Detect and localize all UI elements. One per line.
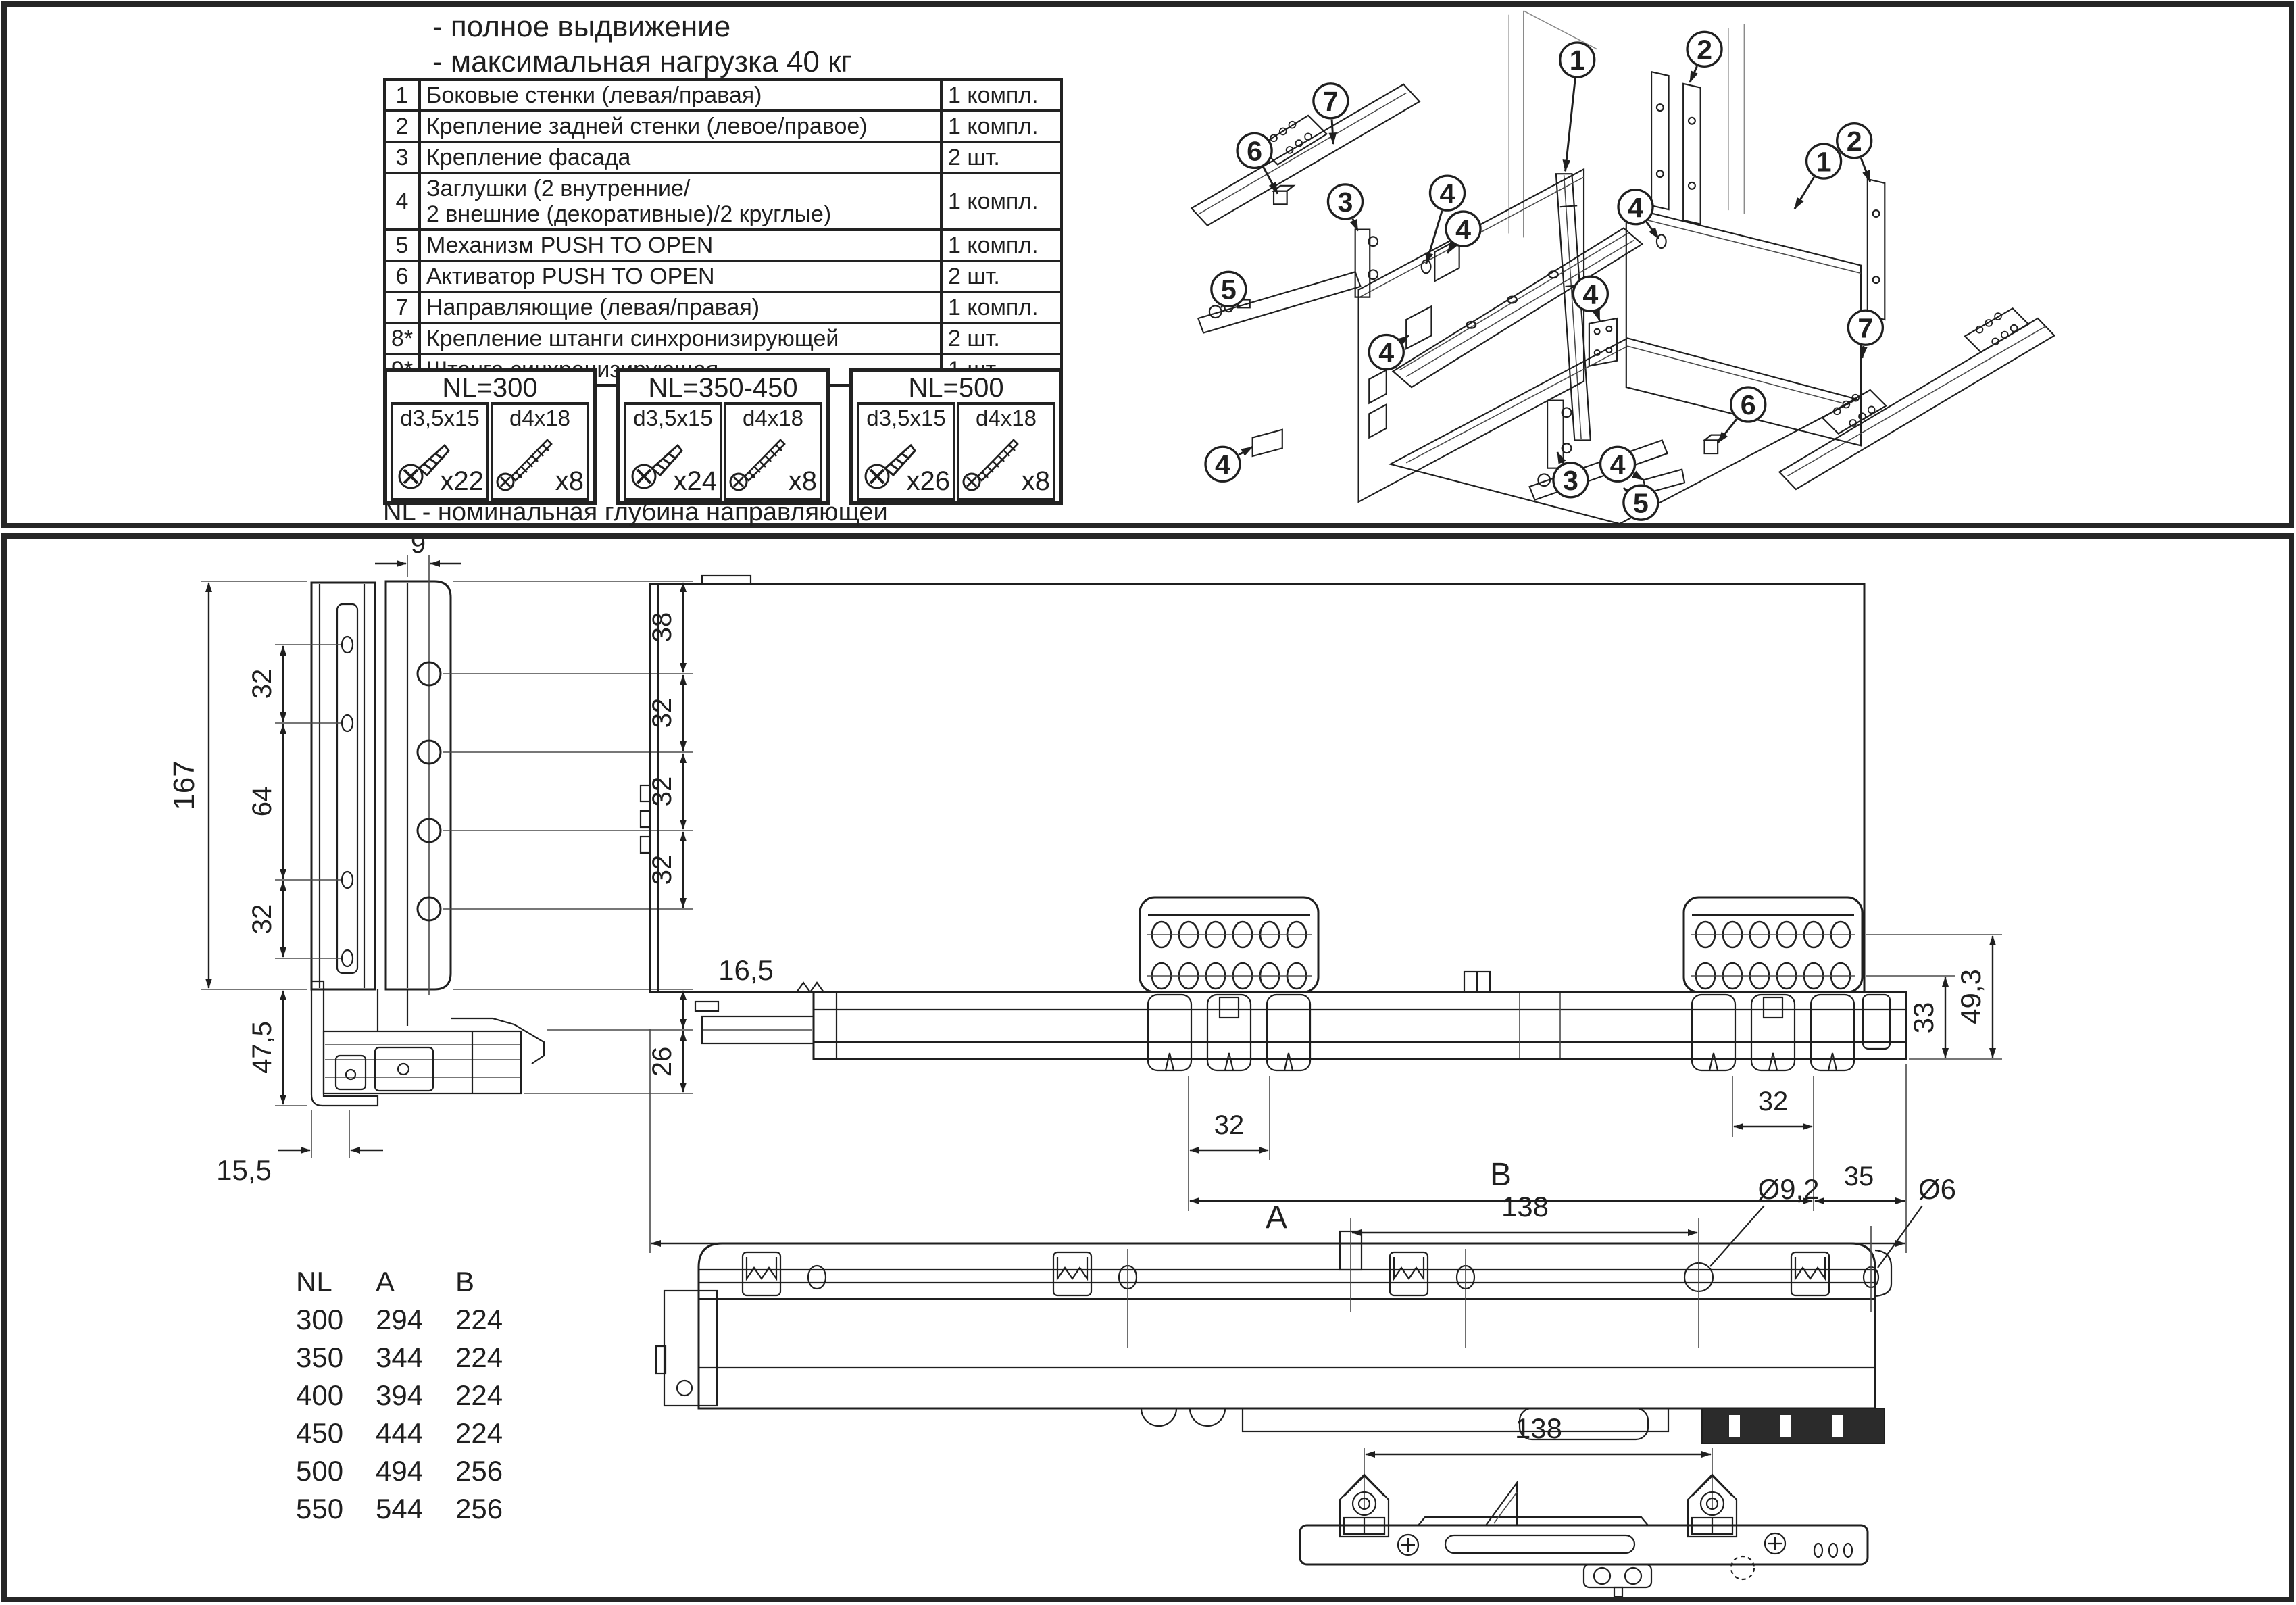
parts-list-table: 1Боковые стенки (левая/правая)1 компл.2К… <box>383 78 1063 387</box>
nl-note: NL - номинальная глубина направляющей <box>383 498 888 527</box>
parts-table-row: 3Крепление фасада2 шт. <box>384 142 1062 173</box>
size-table-cell: 224 <box>455 1414 535 1452</box>
dim-15-5: 15,5 <box>216 1154 272 1186</box>
screw-cell: d4x18x8 <box>957 402 1055 501</box>
callout-leader <box>1624 488 1627 491</box>
profile-dimensions: 9 167 32 64 32 <box>168 539 774 1186</box>
spring-windows <box>743 1252 1829 1295</box>
feature-bullets: - полное выдвижение - максимальная нагру… <box>432 9 851 80</box>
callout-leader <box>1222 306 1222 307</box>
callout-number: 4 <box>1582 278 1598 310</box>
callout-leader <box>1566 78 1576 171</box>
bullet-full-extension: - полное выдвижение <box>432 10 730 43</box>
parts-table-row: 5Механизм PUSH TO OPEN1 компл. <box>384 230 1062 261</box>
parts-cell-nm: Крепление фасада <box>420 142 941 173</box>
dim-32-left-bracket: 32 <box>1214 1110 1245 1140</box>
dim-A: A <box>1266 1200 1287 1235</box>
callout-number: 6 <box>1741 389 1756 420</box>
screw-kit-title: NL=350-450 <box>620 372 826 402</box>
parts-cell-nm: Активатор PUSH TO OPEN <box>420 261 941 292</box>
screw-kit-box: NL=350-450d3,5x15x24d4x18x8 <box>616 368 830 505</box>
callout-number: 4 <box>1628 192 1643 223</box>
size-table-cell: 300 <box>296 1301 376 1339</box>
screw-long-icon <box>961 430 1028 498</box>
screw-count: x8 <box>1022 466 1050 497</box>
callout-number: 3 <box>1338 187 1353 218</box>
parts-cell-num: 6 <box>384 261 420 292</box>
callout-number: 7 <box>1857 312 1873 343</box>
size-table-cell: 256 <box>455 1452 535 1490</box>
size-table-cell: 256 <box>455 1490 535 1528</box>
size-table-cell: 294 <box>376 1301 455 1339</box>
callout-leader <box>1861 158 1870 182</box>
parts-cell-qty: 1 компл. <box>941 80 1062 111</box>
callout-leader <box>1401 336 1409 341</box>
slide-rail-right-icon <box>1779 308 2054 489</box>
dim-9: 9 <box>411 539 426 559</box>
exploded-assembly-diagram: 7612344454412476345 <box>1149 8 2296 525</box>
screw-long-icon <box>495 430 562 498</box>
parts-cell-num: 8* <box>384 323 420 354</box>
callout-bubbles: 7612344454412476345 <box>1205 32 1882 520</box>
bottom-panel-icon <box>1391 338 1857 524</box>
size-table-cell: 350 <box>296 1339 376 1377</box>
parts-table-row: 2Крепление задней стенки (левое/правое)1… <box>384 111 1062 142</box>
size-table-header: B <box>455 1263 535 1301</box>
callout-number: 4 <box>1455 214 1471 245</box>
callout-number: 4 <box>1610 449 1626 480</box>
size-table-cell: 400 <box>296 1377 376 1414</box>
parts-cell-qty: 1 компл. <box>941 111 1062 142</box>
rail-top-view <box>656 1218 1891 1443</box>
main-side-view <box>641 576 1906 1070</box>
size-table: NLAB300294224350344224400394224450444224… <box>296 1263 535 1528</box>
screw-kit-box: NL=300d3,5x15x22d4x18x8 <box>383 368 597 505</box>
dim-49-3: 49,3 <box>1955 969 1987 1024</box>
parts-cell-qty: 2 шт. <box>941 261 1062 292</box>
callout-number: 4 <box>1440 178 1455 209</box>
size-table-header: A <box>376 1263 455 1301</box>
screw-size-label: d4x18 <box>959 405 1053 430</box>
parts-cell-qty: 1 компл. <box>941 230 1062 261</box>
parts-cell-nm: Крепление задней стенки (левое/правое) <box>420 111 941 142</box>
back-wall-strip-icons <box>1651 72 1885 320</box>
screw-kit-title: NL=300 <box>387 372 593 402</box>
parts-cell-qty: 2 шт. <box>941 323 1062 354</box>
slide-rail-left-icon <box>1191 84 1419 226</box>
callout-number: 2 <box>1847 126 1862 157</box>
screw-size-label: d3,5x15 <box>859 405 953 430</box>
callout-leader <box>1264 167 1278 194</box>
top-panel: - полное выдвижение - максимальная нагру… <box>1 1 2294 528</box>
callout-number: 1 <box>1570 45 1585 76</box>
dim-138-rail: 138 <box>1501 1191 1549 1223</box>
screw-long-icon <box>728 430 795 498</box>
screw-count: x8 <box>789 466 817 497</box>
callout-leader <box>1862 346 1864 358</box>
callout-number: 4 <box>1378 337 1394 368</box>
callout-number: 7 <box>1323 86 1339 117</box>
parts-cell-nm: Механизм PUSH TO OPEN <box>420 230 941 261</box>
parts-cell-nm: Направляющие (левая/правая) <box>420 292 941 323</box>
callout-number: 4 <box>1215 449 1230 480</box>
dim-32-inner-a: 32 <box>247 669 277 699</box>
parts-cell-nm: Заглушки (2 внутренние/ 2 внешние (декор… <box>420 173 941 230</box>
callout-leader <box>1647 222 1659 239</box>
dimension-panel: NLAB300294224350344224400394224450444224… <box>1 533 2294 1602</box>
dim-32-right-b: 32 <box>647 776 677 807</box>
parts-table-row: 4Заглушки (2 внутренние/ 2 внешние (деко… <box>384 173 1062 230</box>
size-table-cell: 550 <box>296 1490 376 1528</box>
parts-cell-num: 4 <box>384 173 420 230</box>
parts-cell-nm: Боковые стенки (левая/правая) <box>420 80 941 111</box>
callout-leader <box>1633 474 1643 480</box>
screw-kit-box: NL=500d3,5x15x26d4x18x8 <box>849 368 1063 505</box>
callout-leader <box>1447 245 1453 253</box>
dim-32-inner-b: 32 <box>247 904 277 935</box>
parts-table-row: 1Боковые стенки (левая/правая)1 компл. <box>384 80 1062 111</box>
dim-B: B <box>1490 1157 1512 1193</box>
callout-number: 3 <box>1563 465 1578 496</box>
callout-number: 1 <box>1816 146 1832 177</box>
screw-count: x8 <box>555 466 584 497</box>
dim-16-5: 16,5 <box>718 954 774 986</box>
screw-size-label: d4x18 <box>493 405 587 430</box>
size-table-cell: 494 <box>376 1452 455 1490</box>
dim-32-right-c: 32 <box>647 855 677 885</box>
parts-cell-qty: 1 компл. <box>941 173 1062 230</box>
screw-count: x24 <box>674 466 718 497</box>
screw-cell: d3,5x15x24 <box>624 402 722 501</box>
screw-cell: d3,5x15x22 <box>391 402 489 501</box>
callout-leader <box>1332 120 1333 144</box>
parts-cell-qty: 1 компл. <box>941 292 1062 323</box>
size-table-header: NL <box>296 1263 376 1301</box>
parts-cell-num: 3 <box>384 142 420 173</box>
size-table-cell: 224 <box>455 1301 535 1339</box>
parts-table-row: 6Активатор PUSH TO OPEN2 шт. <box>384 261 1062 292</box>
callout-leader <box>1718 419 1737 443</box>
dim-138-part: 138 <box>1515 1412 1562 1444</box>
size-table-cell: 544 <box>376 1490 455 1528</box>
callout-number: 6 <box>1247 136 1262 167</box>
parts-cell-num: 2 <box>384 111 420 142</box>
callout-leader <box>1795 177 1814 209</box>
callout-number: 5 <box>1221 274 1237 305</box>
callout-number: 2 <box>1697 34 1712 66</box>
screw-cell: d3,5x15x26 <box>857 402 955 501</box>
dim-33: 33 <box>1907 1002 1939 1034</box>
callout-leader <box>1597 312 1600 321</box>
size-table-cell: 444 <box>376 1414 455 1452</box>
dim-dia-9-2: Ø9,2 <box>1757 1173 1819 1205</box>
dim-47-5: 47,5 <box>247 1021 277 1074</box>
screw-cell: d4x18x8 <box>491 402 589 501</box>
dim-167: 167 <box>168 760 201 810</box>
screw-size-label: d4x18 <box>726 405 820 430</box>
dim-dia-6: Ø6 <box>1918 1173 1956 1205</box>
dim-26: 26 <box>647 1047 677 1077</box>
bullet-max-load: - максимальная нагрузка 40 кг <box>432 45 851 78</box>
callout-leader <box>1557 452 1563 463</box>
parts-cell-qty: 2 шт. <box>941 142 1062 173</box>
screw-kit-title: NL=500 <box>853 372 1059 402</box>
dim-32-right-a: 32 <box>647 698 677 729</box>
callout-number: 5 <box>1633 487 1649 518</box>
screw-size-label: d3,5x15 <box>393 405 486 430</box>
parts-cell-nm: Крепление штанги синхронизирующей <box>420 323 941 354</box>
size-table-cell: 394 <box>376 1377 455 1414</box>
screw-count: x22 <box>441 466 484 497</box>
screw-size-label: d3,5x15 <box>626 405 720 430</box>
size-table-cell: 224 <box>455 1377 535 1414</box>
screw-cell: d4x18x8 <box>724 402 822 501</box>
size-table-cell: 500 <box>296 1452 376 1490</box>
size-table-cell: 450 <box>296 1414 376 1452</box>
parts-cell-num: 1 <box>384 80 420 111</box>
screw-count: x26 <box>907 466 951 497</box>
dim-35: 35 <box>1844 1162 1874 1191</box>
size-table-cell: 224 <box>455 1339 535 1377</box>
dim-38: 38 <box>647 612 677 643</box>
parts-table-row: 8*Крепление штанги синхронизирующей2 шт. <box>384 323 1062 354</box>
dim-32-right-bracket: 32 <box>1758 1087 1789 1116</box>
callout-leader <box>1239 447 1252 455</box>
main-dimensions: 32 32 B 35 A 33 49,3 <box>650 935 2002 1253</box>
parts-cell-num: 7 <box>384 292 420 323</box>
profile-section-view <box>311 560 544 1106</box>
instruction-sheet: - полное выдвижение - максимальная нагру… <box>0 0 2296 1605</box>
size-table-cell: 344 <box>376 1339 455 1377</box>
parts-cell-num: 5 <box>384 230 420 261</box>
dim-64: 64 <box>247 787 277 817</box>
callout-leader <box>1690 66 1697 82</box>
parts-table-row: 7Направляющие (левая/правая)1 компл. <box>384 292 1062 323</box>
